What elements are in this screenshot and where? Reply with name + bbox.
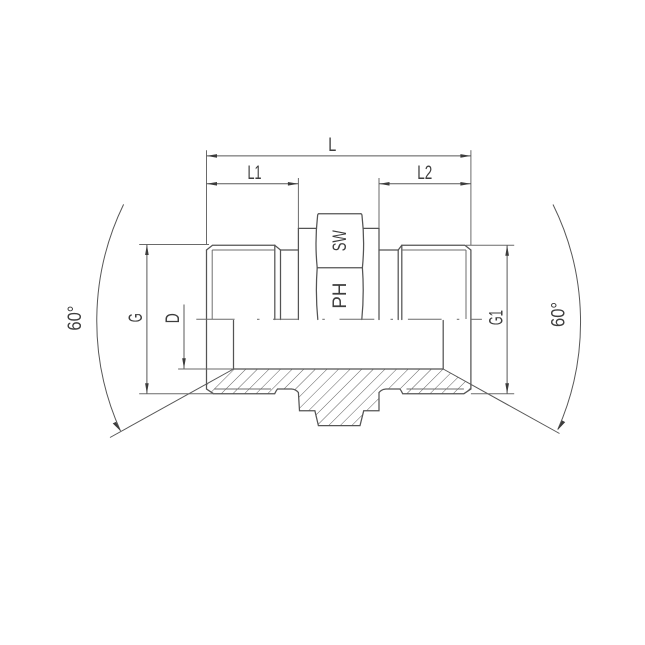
svg-text:60°: 60°: [549, 302, 570, 327]
svg-text:D: D: [163, 313, 184, 323]
svg-text:G: G: [126, 313, 147, 322]
svg-text:SW: SW: [330, 230, 351, 251]
svg-text:L1: L1: [248, 163, 262, 184]
svg-text:PH: PH: [330, 283, 351, 309]
svg-text:60°: 60°: [65, 306, 86, 331]
svg-text:G1: G1: [487, 310, 508, 325]
svg-text:L2: L2: [417, 163, 432, 184]
svg-text:L: L: [328, 135, 336, 156]
